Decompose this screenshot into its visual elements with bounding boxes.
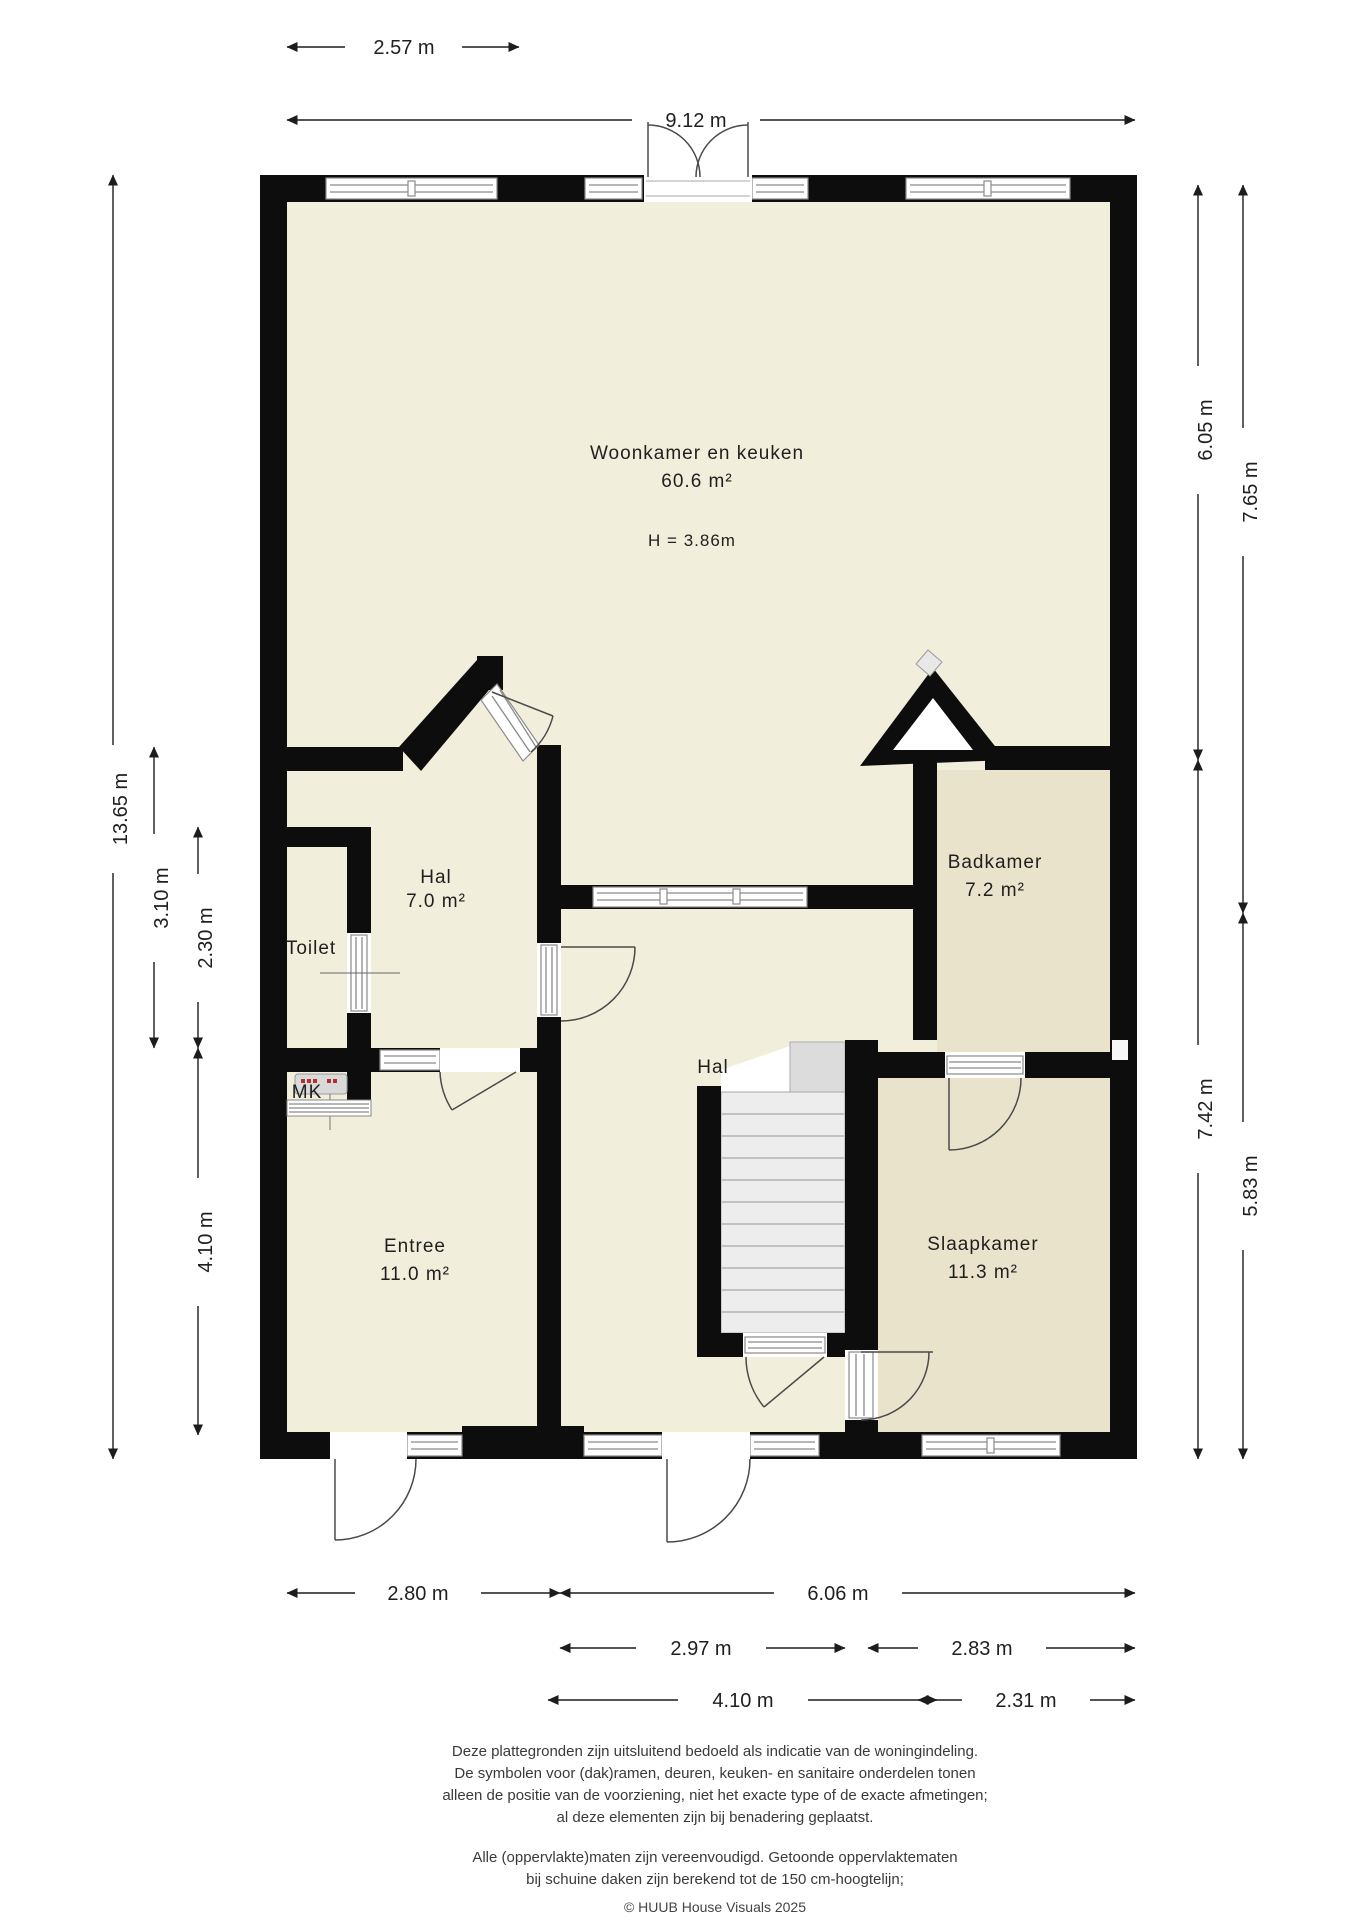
disclaimer-line-2: De symbolen voor (dak)ramen, deuren, keu…: [454, 1765, 975, 1782]
svg-text:7.42 m: 7.42 m: [1195, 1078, 1217, 1139]
label-mk: MK: [292, 1082, 323, 1103]
window-top-2: [585, 178, 642, 199]
label-woonkamer-height: H = 3.86m: [648, 531, 736, 550]
disclaimer-line-1: Deze plattegronden zijn uitsluitend bedo…: [452, 1743, 978, 1760]
wall-outer-right: [1110, 175, 1137, 1459]
wall-diagonal-peak: [477, 656, 503, 690]
window-bottom-3: [750, 1435, 819, 1456]
dim-bottom-hal: 2.97 m: [560, 1638, 845, 1660]
dim-right-lower-a: 7.42 m: [1195, 760, 1217, 1459]
label-badkamer-name: Badkamer: [948, 852, 1043, 873]
dim-right-upper-a: 6.05 m: [1195, 185, 1217, 760]
svg-text:2.31 m: 2.31 m: [995, 1690, 1056, 1712]
floor-plan-svg: Woonkamer en keuken 60.6 m² H = 3.86m Ha…: [0, 0, 1358, 1920]
stair-flight: [721, 1092, 845, 1333]
disclaimer-line-4: al deze elementen zijn bij benadering ge…: [557, 1809, 874, 1826]
svg-text:2.97 m: 2.97 m: [670, 1638, 731, 1660]
label-woonkamer-name: Woonkamer en keuken: [590, 443, 804, 464]
window-bottom-4: [922, 1435, 1060, 1456]
window-interior-hal: [593, 887, 807, 907]
dim-bottom-total-right: 6.06 m: [560, 1583, 1135, 1605]
wall-bottom-pier: [462, 1426, 584, 1459]
copyright: © HUUB House Visuals 2025: [624, 1899, 806, 1915]
svg-text:4.10 m: 4.10 m: [195, 1211, 217, 1272]
window-top-3: [752, 178, 808, 199]
label-hal-midden: Hal: [697, 1057, 729, 1078]
svg-text:6.05 m: 6.05 m: [1195, 399, 1217, 460]
dim-bottom-hal-outer: 4.10 m: [548, 1690, 937, 1712]
label-badkamer-area: 7.2 m²: [965, 880, 1025, 901]
window-hal-entree: [380, 1050, 440, 1070]
disclaimer-line-3: alleen de positie van de voorziening, ni…: [442, 1787, 987, 1804]
svg-text:5.83 m: 5.83 m: [1240, 1155, 1262, 1216]
svg-text:4.10 m: 4.10 m: [712, 1690, 773, 1712]
label-slaapkamer-name: Slaapkamer: [927, 1234, 1038, 1255]
wall-outer-left: [260, 175, 287, 1459]
svg-text:3.10 m: 3.10 m: [151, 867, 173, 928]
svg-text:2.57 m: 2.57 m: [373, 37, 434, 59]
dim-left-entree: 4.10 m: [195, 1048, 217, 1435]
label-entree-name: Entree: [384, 1236, 446, 1257]
dim-right-upper-b: 7.65 m: [1240, 185, 1262, 913]
label-toilet: Toilet: [286, 938, 336, 959]
dim-right-lower-b: 5.83 m: [1240, 913, 1262, 1459]
french-door-top: [644, 122, 752, 202]
svg-text:2.30 m: 2.30 m: [195, 907, 217, 968]
floor-plan-page: Woonkamer en keuken 60.6 m² H = 3.86m Ha…: [0, 0, 1358, 1920]
svg-text:7.65 m: 7.65 m: [1240, 461, 1262, 522]
svg-text:9.12 m: 9.12 m: [665, 110, 726, 132]
label-hal-boven-name: Hal: [420, 867, 452, 888]
dim-top-partial: 2.57 m: [287, 37, 519, 59]
dim-left-total: 13.65 m: [110, 175, 132, 1459]
label-entree-area: 11.0 m²: [380, 1264, 450, 1285]
wall-badkamer-left: [913, 760, 937, 1040]
svg-text:2.80 m: 2.80 m: [387, 1583, 448, 1605]
stair-landing: [790, 1042, 845, 1092]
svg-text:6.06 m: 6.06 m: [807, 1583, 868, 1605]
floor-badkamer: [937, 770, 1110, 1052]
label-woonkamer-area: 60.6 m²: [661, 471, 732, 492]
dim-bottom-stairs: 2.31 m: [918, 1690, 1135, 1712]
window-top-4: [906, 178, 1070, 199]
wall-niche: [1112, 1040, 1128, 1060]
dim-bottom-slaapkamer: 2.83 m: [868, 1638, 1135, 1660]
dim-left-hal: 3.10 m: [151, 747, 173, 1048]
wall-entree-right: [537, 745, 561, 1432]
wall-stair-left: [697, 1086, 721, 1357]
label-hal-boven-area: 7.0 m²: [406, 891, 466, 912]
label-slaapkamer-area: 11.3 m²: [948, 1262, 1018, 1283]
dim-left-toilet: 2.30 m: [195, 827, 217, 1048]
dim-bottom-entree: 2.80 m: [287, 1583, 560, 1605]
footer: Deze plattegronden zijn uitsluitend bedo…: [442, 1743, 987, 1915]
disclaimer-line-6: bij schuine daken zijn berekend tot de 1…: [526, 1871, 904, 1888]
front-door: [330, 1432, 416, 1540]
dim-top-total: 9.12 m: [287, 110, 1135, 132]
wall-hal-top: [287, 747, 403, 771]
window-top-1: [326, 178, 497, 199]
window-bottom-2: [584, 1435, 662, 1456]
disclaimer-line-5: Alle (oppervlakte)maten zijn vereenvoudi…: [472, 1849, 957, 1866]
hal-door-bottom: [662, 1432, 750, 1542]
window-bottom-1: [407, 1435, 462, 1456]
svg-text:13.65 m: 13.65 m: [110, 773, 132, 845]
svg-text:2.83 m: 2.83 m: [951, 1638, 1012, 1660]
floor-slaapkamer: [878, 1078, 1110, 1432]
staircase: [721, 1042, 845, 1333]
